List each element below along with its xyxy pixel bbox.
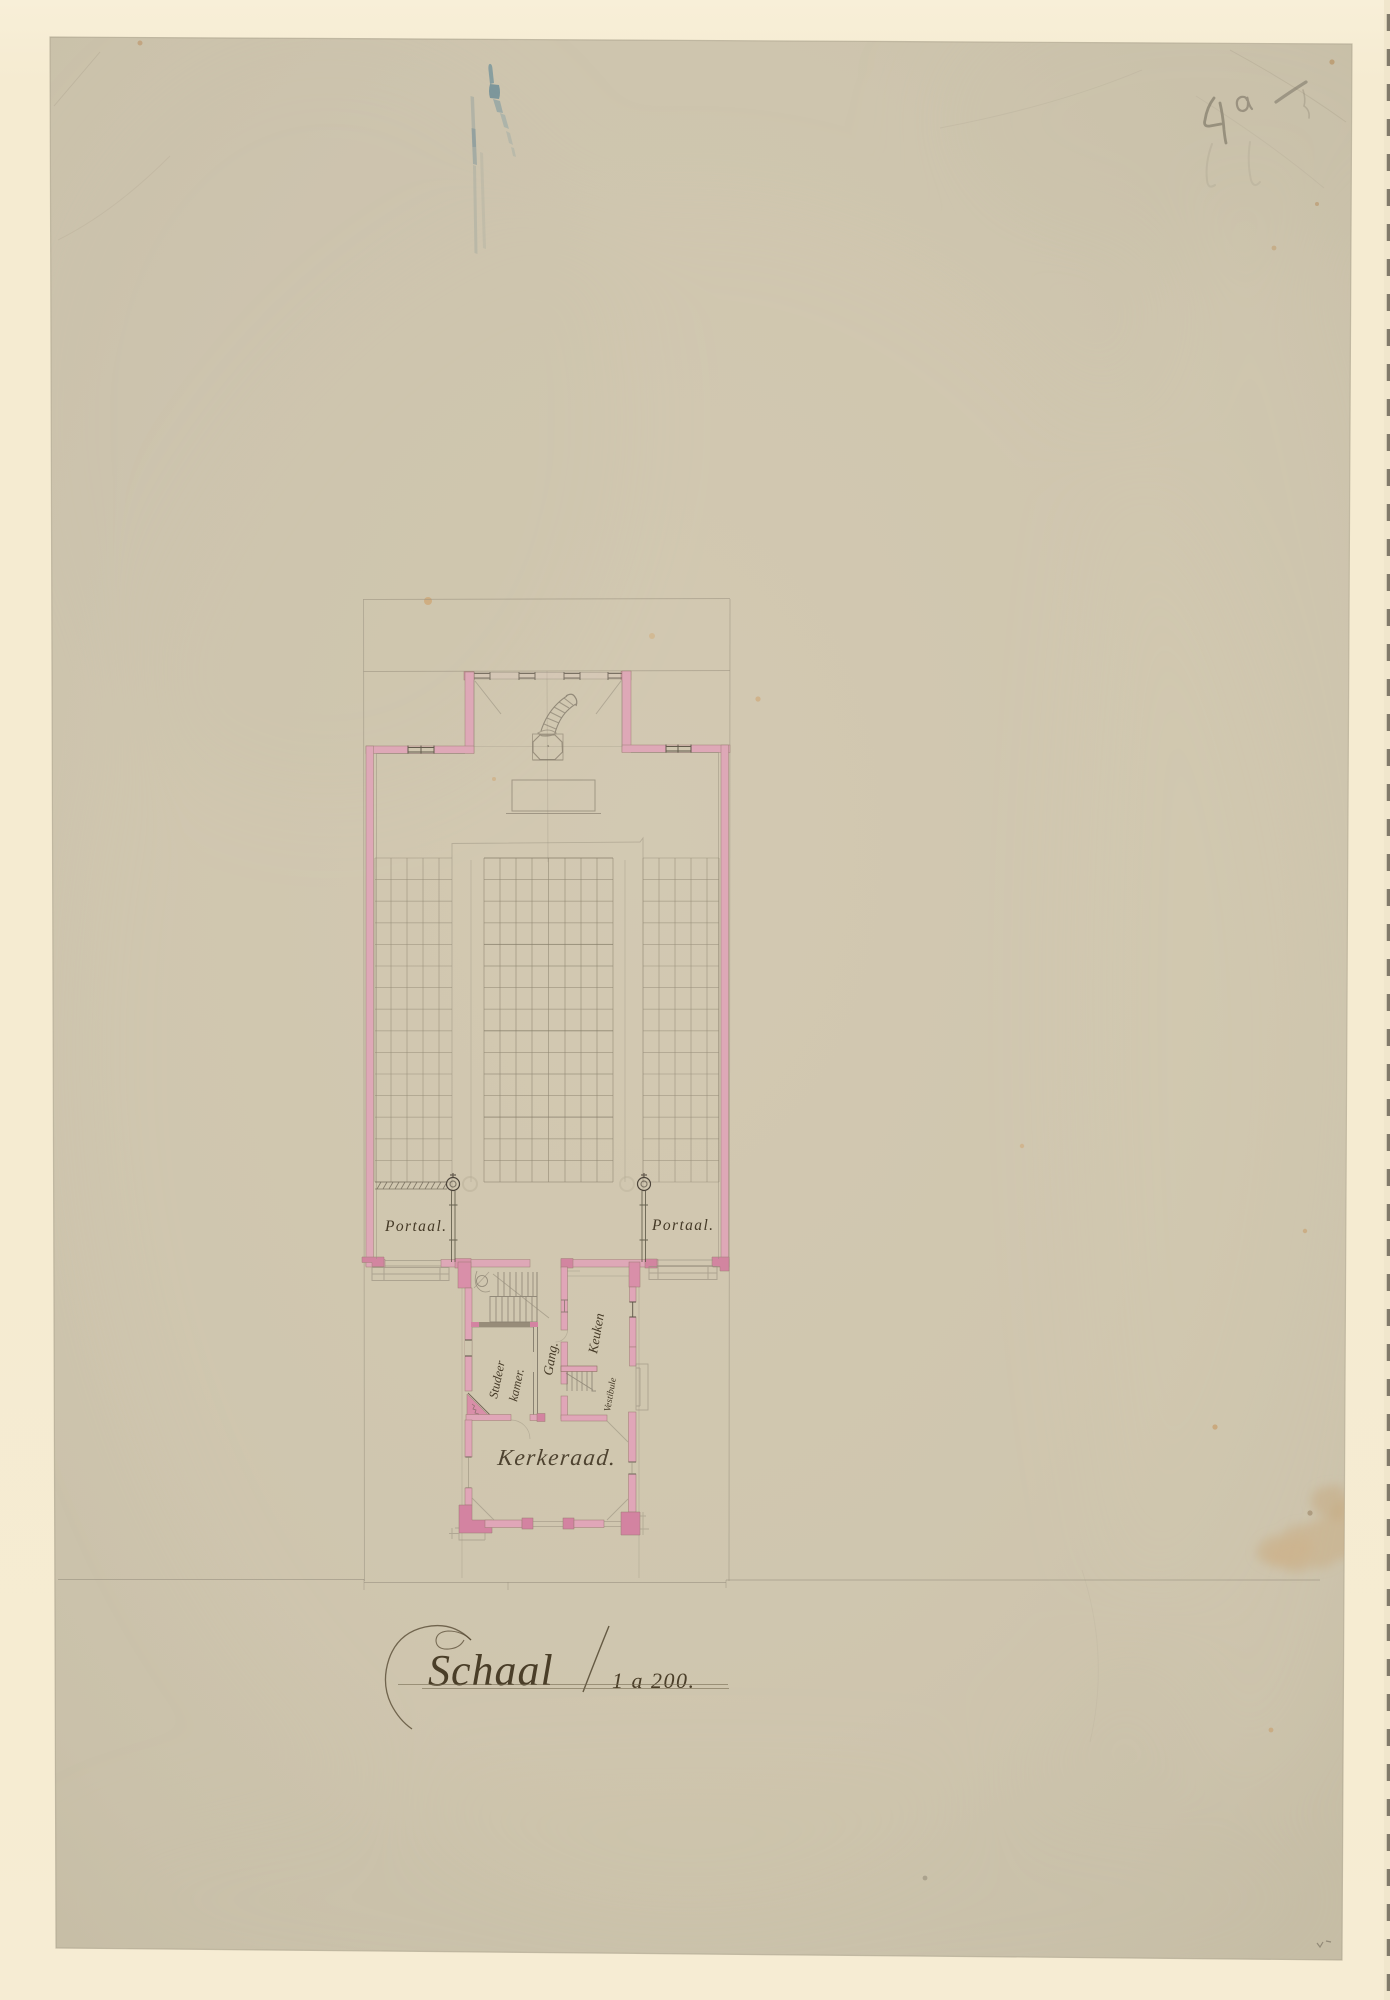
svg-text:Schaal: Schaal [428, 1646, 554, 1695]
svg-text:Kerkeraad.: Kerkeraad. [495, 1444, 618, 1470]
svg-text:Portaal.: Portaal. [651, 1217, 714, 1234]
svg-text:Portaal.: Portaal. [384, 1218, 447, 1235]
svg-text:1 a 200.: 1 a 200. [612, 1668, 696, 1693]
